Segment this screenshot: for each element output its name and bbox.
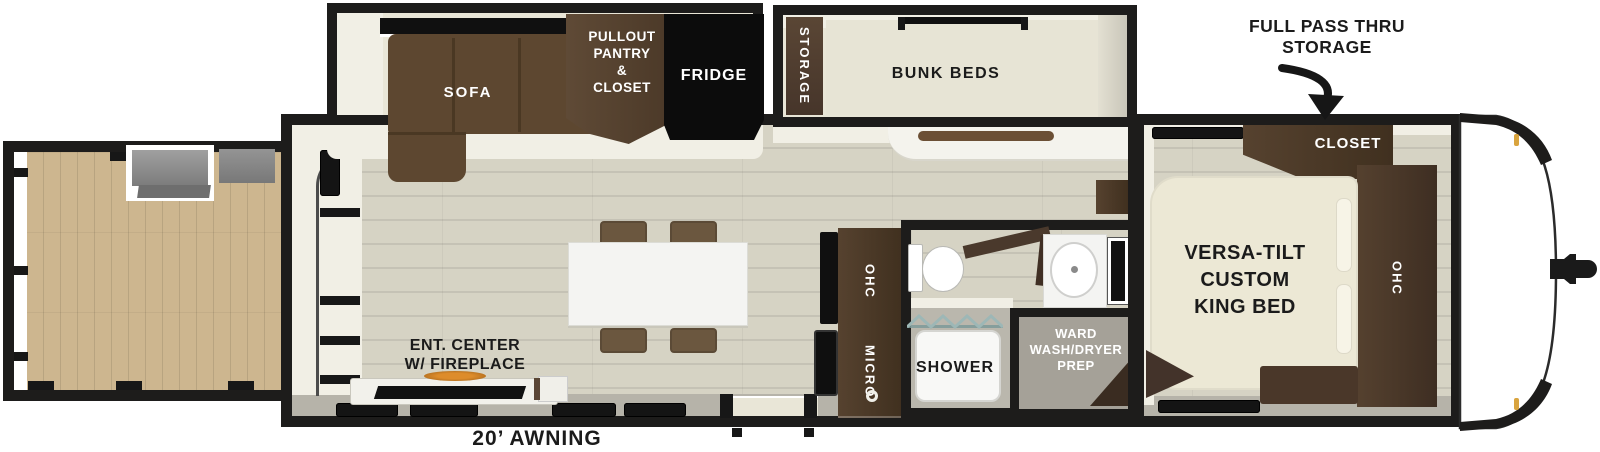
kitchen-ohc-label: OHC: [852, 244, 888, 318]
marker-light: [1514, 398, 1519, 410]
rv-floorplan: ENT. CENTER W/ FIREPLACE OHC MICRO SHOWE…: [0, 0, 1600, 452]
window: [624, 403, 686, 417]
hitch-coupler: [1550, 246, 1600, 290]
bunk-handle-end: [898, 17, 905, 30]
range-stove: [814, 330, 838, 396]
grill-large: [132, 150, 208, 186]
pantry-label: PULLOUT PANTRY & CLOSET: [566, 28, 678, 96]
counter-end-cabinet: [538, 376, 568, 402]
toilet-tank: [908, 244, 923, 292]
ent-center-label: ENT. CENTER W/ FIREPLACE: [380, 336, 550, 374]
bed-pillow: [1336, 284, 1352, 354]
sofa-slide-end-wall: [337, 13, 383, 115]
sofa-label: SOFA: [408, 84, 528, 102]
ward-label: WARD WASH/DRYER PREP: [1014, 326, 1138, 374]
window: [336, 403, 398, 417]
deck-rail-post: [228, 381, 254, 390]
king-bed-label: VERSA-TILT CUSTOM KING BED: [1155, 240, 1335, 321]
bunk-beds-label: BUNK BEDS: [836, 64, 1056, 83]
deck-rail-post: [28, 381, 54, 390]
bunk-slide-shade: [1098, 15, 1127, 117]
shower-glass: [907, 312, 1003, 330]
pass-thru-arrow: [1276, 62, 1348, 124]
bath-divider: [911, 298, 1013, 308]
sofa-chaise: [388, 132, 466, 182]
bedroom-window-top: [1152, 127, 1244, 139]
bunk-handle: [900, 17, 1028, 24]
window: [552, 403, 616, 417]
rear-ladder-rung: [320, 296, 360, 305]
closet-label: CLOSET: [1293, 135, 1403, 153]
rear-ladder-rung: [320, 336, 360, 345]
entry-step: [804, 428, 814, 437]
tv: [374, 386, 526, 399]
entry-step: [732, 428, 742, 437]
deck-rail-post: [14, 168, 28, 177]
bedroom-partition-wall: [1128, 125, 1144, 416]
fridge-label: FRIDGE: [664, 66, 764, 85]
under-bunk-slide-band: [773, 125, 893, 143]
bedroom-ohc-label: OHC: [1382, 240, 1412, 316]
deck-rail-post: [116, 381, 142, 390]
entry-door-frame: [720, 394, 733, 418]
entry-door-frame: [804, 394, 817, 418]
dinette-table: [568, 242, 748, 326]
shower-label: SHOWER: [905, 358, 1005, 377]
rear-counter-sill: [918, 131, 1054, 141]
fireplace-flame: [424, 371, 486, 381]
dinette-chair: [600, 328, 647, 353]
awning-label: 20’ AWNING: [437, 426, 637, 451]
bedroom-window-bottom: [1158, 400, 1260, 413]
grill-small: [219, 149, 275, 183]
pass-thru-label: FULL PASS THRU STORAGE: [1227, 16, 1427, 58]
grill-front: [137, 185, 211, 198]
bath-window: [1108, 238, 1128, 304]
dinette-chair: [670, 328, 717, 353]
kitchen-counter-dark: [820, 232, 838, 324]
bunk-handle-end: [1021, 17, 1028, 30]
storage-label: STORAGE: [786, 17, 823, 115]
bed-pillow: [1336, 198, 1352, 272]
window: [410, 403, 478, 417]
bed-foot-bench: [1260, 366, 1358, 404]
cabinet-handle: [866, 390, 878, 402]
deck-rail-post: [14, 352, 28, 361]
toilet-bowl: [922, 246, 964, 292]
counter-end-edge: [534, 378, 540, 400]
marker-light: [1514, 134, 1519, 146]
hall-dresser: [1096, 180, 1128, 214]
sink-drain: [1071, 266, 1078, 273]
rear-ladder-rung: [320, 208, 360, 217]
deck-rail-post: [14, 266, 28, 275]
